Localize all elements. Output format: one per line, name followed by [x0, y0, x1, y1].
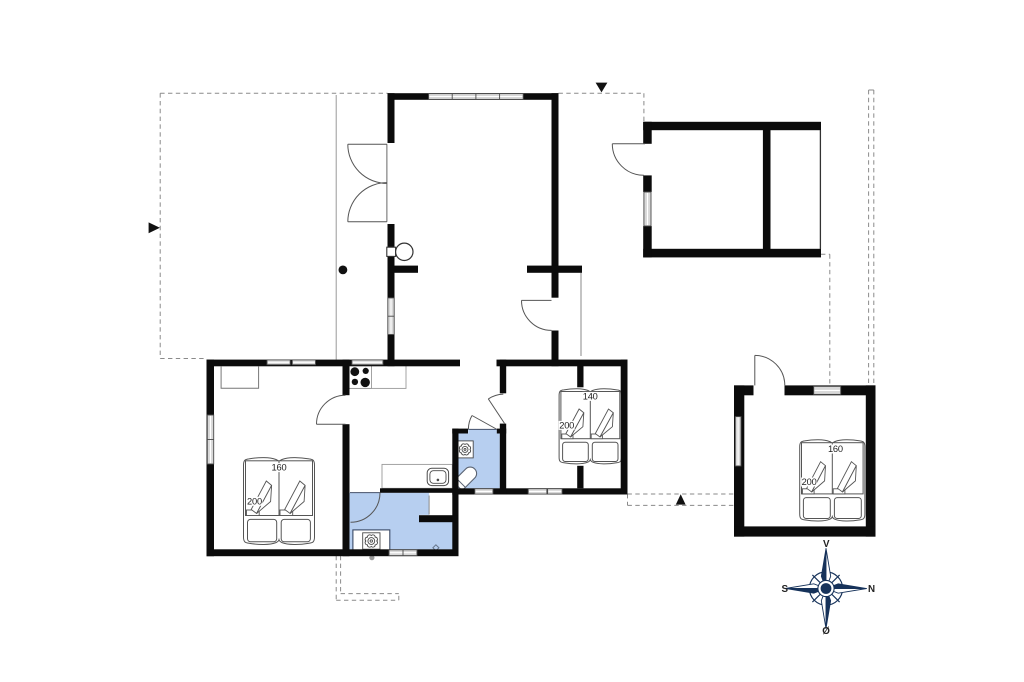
svg-text:160: 160 [272, 463, 287, 473]
svg-text:N: N [868, 584, 875, 595]
svg-text:S: S [782, 584, 789, 595]
svg-text:140: 140 [583, 391, 598, 401]
svg-text:Ø: Ø [822, 626, 830, 637]
svg-text:200: 200 [247, 496, 262, 506]
svg-text:200: 200 [802, 477, 817, 487]
svg-text:160: 160 [828, 444, 843, 454]
svg-text:V: V [823, 539, 830, 550]
svg-text:200: 200 [559, 420, 574, 430]
